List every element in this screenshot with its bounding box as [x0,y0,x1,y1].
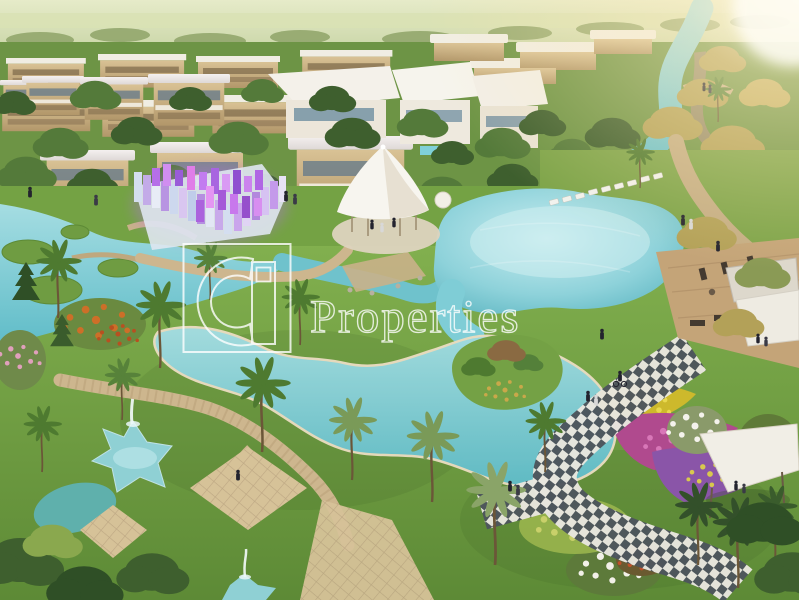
scene-canvas: Properties [0,0,799,600]
sun-glow [380,0,799,300]
aerial-render-image: Properties [0,0,799,600]
brand-watermark-text: Properties [310,291,521,343]
